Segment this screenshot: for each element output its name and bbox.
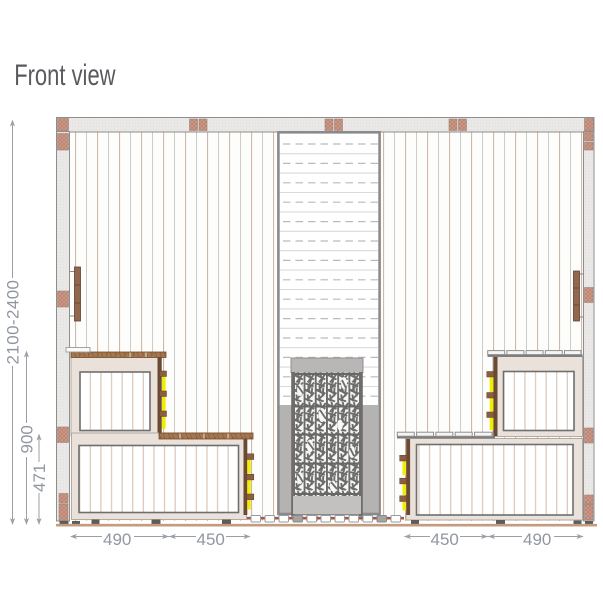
svg-text:Front view: Front view (14, 58, 116, 92)
svg-text:450: 450 (197, 530, 225, 549)
svg-text:490: 490 (523, 530, 551, 549)
svg-text:2100-2400: 2100-2400 (4, 280, 23, 365)
svg-text:900: 900 (18, 425, 37, 453)
svg-text:490: 490 (103, 530, 131, 549)
svg-text:471: 471 (30, 464, 49, 492)
svg-text:450: 450 (431, 530, 459, 549)
